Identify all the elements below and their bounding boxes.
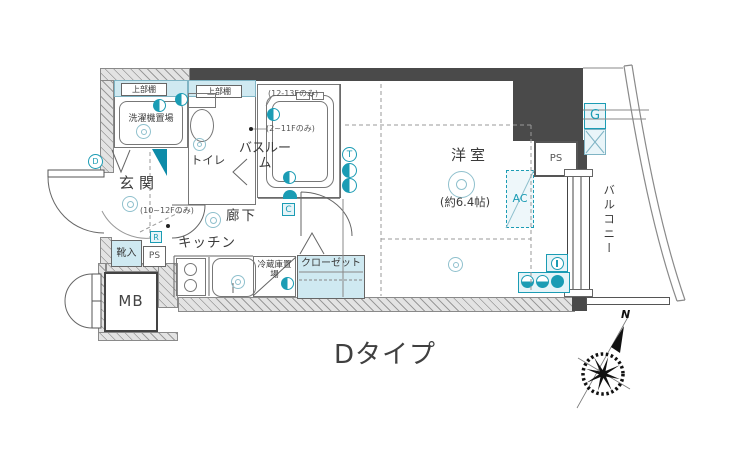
- corridor-light-icon: [205, 212, 221, 228]
- toilet-bowl: [190, 109, 214, 142]
- wall-mb-bottom: [98, 332, 178, 341]
- room-door-arc: [301, 192, 352, 236]
- ps-balcony-label: PS: [534, 141, 578, 177]
- badge-t-label: T: [347, 150, 353, 160]
- closet-folding-door: [300, 233, 324, 254]
- outlet-icon-2: [536, 275, 549, 288]
- toilet-outlet-icon: [175, 93, 188, 106]
- wall-outlet-icon-2: [342, 178, 357, 193]
- outlet-i-icon: [551, 257, 564, 270]
- outlet-icon-3: [551, 275, 564, 288]
- meter-box-label: MB: [104, 272, 158, 332]
- window-frame: [567, 175, 590, 290]
- bath-note-low: (2~11Fのみ): [266, 124, 315, 133]
- badge-d-label: D: [92, 157, 98, 166]
- badge-r: R: [150, 231, 162, 243]
- toilet-drain-icon: [193, 138, 206, 151]
- outlet-i-box: [546, 254, 568, 272]
- entrance-note: (10~12Fのみ): [140, 206, 194, 215]
- hood-icon: [283, 190, 297, 199]
- main-room-size: (約6.4帖): [424, 196, 506, 210]
- wall-corner-dark: [513, 80, 583, 141]
- wall-bottom: [178, 297, 575, 312]
- bath-note-high: (12-13Fのみ): [268, 89, 318, 98]
- laundry-shelf-label: 上部棚: [132, 84, 156, 95]
- bath-label: バスルーム: [238, 137, 292, 177]
- entrance-light-icon: [122, 196, 138, 212]
- ac-label: AC: [506, 170, 534, 228]
- ps-entrance-label: PS: [143, 246, 166, 267]
- entrance-v-mark: [112, 150, 130, 172]
- floorplan-canvas: 上部棚 上部棚: [0, 0, 730, 470]
- entrance-door-swing-arc: [48, 177, 104, 233]
- mb-door-arc-top: [65, 274, 92, 301]
- balcony-curve: [624, 65, 685, 301]
- room-outlet-circle-icon: [448, 257, 463, 272]
- compass-north-label: N: [621, 309, 630, 322]
- bath-note-dot: [249, 127, 253, 131]
- gas-meter-xbox: [584, 129, 606, 155]
- badge-c-label: C: [285, 205, 291, 215]
- badge-t: T: [342, 147, 357, 162]
- bath-outlet-icon-1: [267, 108, 280, 121]
- badge-d: D: [88, 154, 103, 169]
- laundry-label: 洗濯機置場: [116, 106, 186, 132]
- wall-column: [158, 263, 178, 308]
- stove-burner-2: [184, 279, 197, 292]
- compass-rose: [577, 317, 630, 408]
- wall-outlet-icon-1: [342, 163, 357, 178]
- balcony-edge-bar: [586, 297, 670, 305]
- stove-burner-1: [184, 263, 197, 276]
- badge-r-label: R: [153, 233, 159, 242]
- closet-label: クローゼット: [297, 257, 365, 271]
- entrance-label: 玄関: [119, 175, 159, 192]
- toilet-label: トイレ: [186, 153, 230, 168]
- main-room-label: 洋室: [438, 147, 502, 165]
- plan-title: Dタイプ: [322, 339, 448, 373]
- shoe-cabinet-label: 靴入: [111, 240, 142, 267]
- door-stop-dot: [166, 224, 170, 228]
- laundry-shelf-tag: 上部棚: [121, 83, 167, 96]
- balcony-label: バルコニー: [602, 184, 615, 257]
- compass-needle: [611, 326, 624, 353]
- toilet-tank: [188, 93, 216, 108]
- kitchen-label: キッチン: [178, 236, 236, 252]
- entrance-door-leaf: [48, 170, 104, 177]
- entrance-triangle-icon: [152, 149, 167, 176]
- refrigerator-label: 冷蔵庫置場: [255, 258, 294, 284]
- gas-meter-label: G: [584, 103, 606, 129]
- corridor-label: 廊下: [226, 209, 257, 225]
- outlet-icon-1: [521, 275, 534, 288]
- room-light-icon: [448, 171, 475, 198]
- badge-c: C: [282, 203, 295, 216]
- mb-door-arc-bottom: [65, 301, 92, 328]
- sink-drain-icon: [231, 275, 245, 289]
